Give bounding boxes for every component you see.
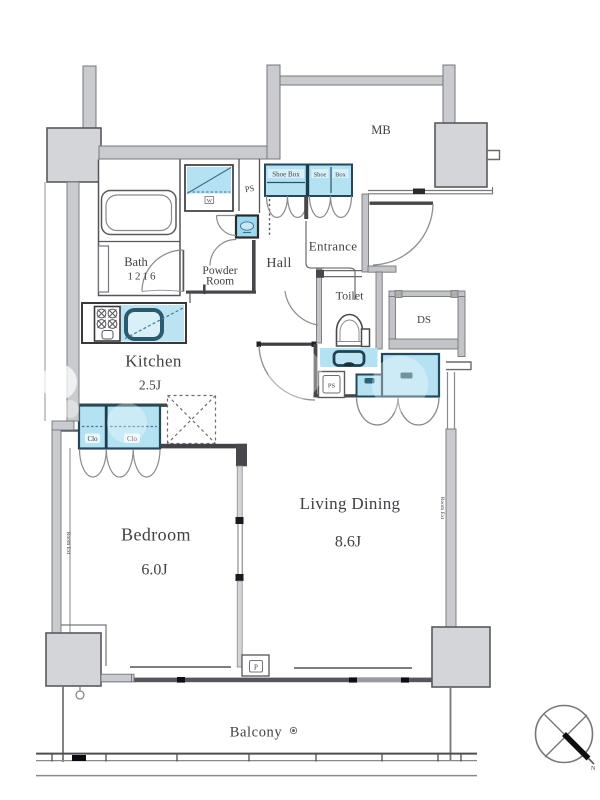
svg-text:MB: MB xyxy=(371,123,390,137)
svg-text:6.0J: 6.0J xyxy=(141,562,167,579)
svg-text:1216: 1216 xyxy=(128,271,158,283)
svg-text:Clo: Clo xyxy=(87,435,98,443)
svg-text:Box: Box xyxy=(335,172,346,179)
svg-text:Balcony: Balcony xyxy=(230,725,283,741)
svg-text:Living Dining: Living Dining xyxy=(300,494,401,513)
svg-text:P: P xyxy=(254,664,258,672)
svg-text:Room: Room xyxy=(206,276,234,288)
svg-text:Room Ext: Room Ext xyxy=(439,497,445,520)
svg-text:Kitchen: Kitchen xyxy=(125,352,182,371)
svg-text:Shoe: Shoe xyxy=(314,172,327,179)
svg-text:PS: PS xyxy=(328,383,336,390)
svg-text:Room Ext: Room Ext xyxy=(65,532,71,555)
svg-text:Toilet: Toilet xyxy=(336,289,364,303)
svg-text:Bath: Bath xyxy=(124,255,148,269)
svg-text:Hall: Hall xyxy=(266,256,291,271)
svg-text:DS: DS xyxy=(417,314,431,326)
svg-text:8.6J: 8.6J xyxy=(335,534,361,551)
svg-text:2.5J: 2.5J xyxy=(139,378,161,393)
svg-text:Entrance: Entrance xyxy=(309,239,358,254)
svg-text:Shoe Box: Shoe Box xyxy=(272,171,300,179)
svg-text:Bedroom: Bedroom xyxy=(121,525,191,545)
svg-text:W: W xyxy=(207,199,213,205)
svg-text:N: N xyxy=(591,766,596,772)
svg-text:PS: PS xyxy=(244,183,255,195)
